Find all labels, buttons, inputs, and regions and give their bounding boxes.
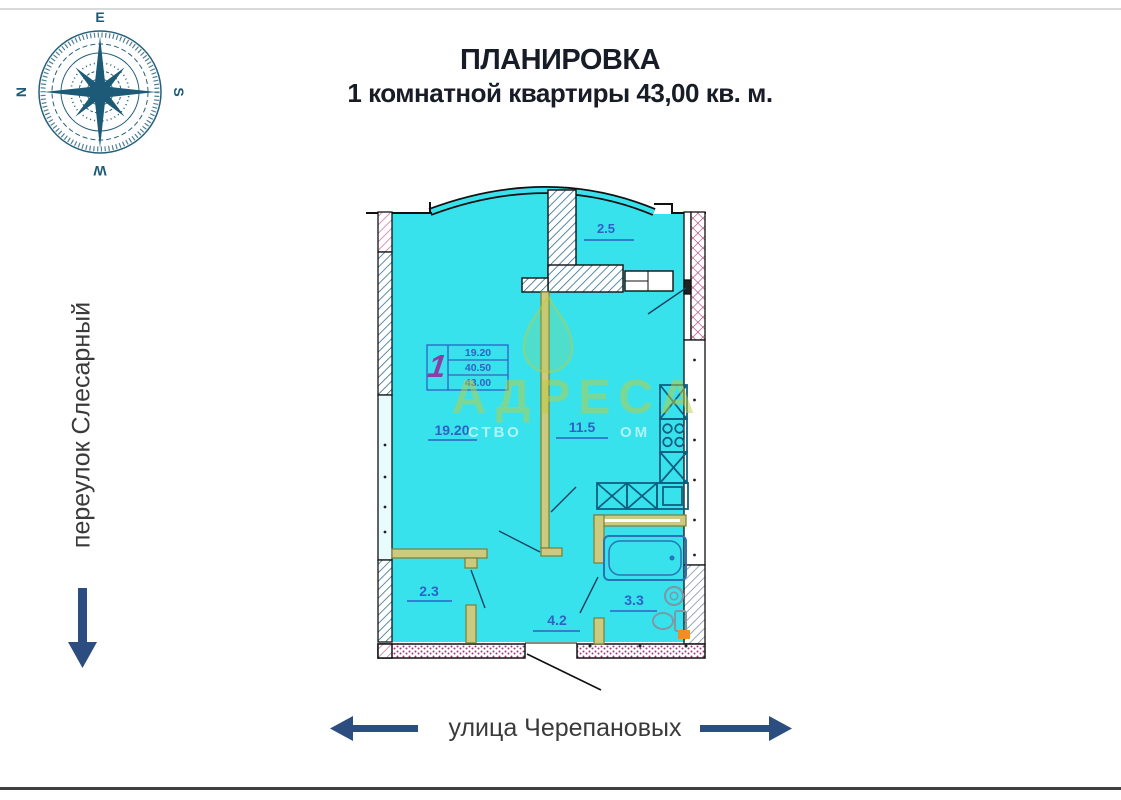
street-label-left: переулок Слесарный [68,302,97,548]
street-arrow-left-icon [330,716,418,741]
plan-graphics: E S W N [0,0,1121,800]
compass-rose-icon: E S W N [13,9,187,179]
legend-row-full-area: 43.00 [450,376,506,391]
room-label-bathroom: 3.3 [604,592,664,608]
legend-apartment-number: 1 [421,348,452,385]
room-label-living: 19.20 [422,422,482,438]
room-label-kitchen: 11.5 [552,419,612,435]
bottom-divider-line [0,787,1121,790]
street-arrow-down-icon [68,588,97,668]
room-label-balcony: 2.5 [576,221,636,236]
legend-row-living-area: 19.20 [450,346,506,361]
street-label-bottom: улица Черепановых [420,714,710,743]
wall-left [378,212,392,642]
page-title: ПЛАНИРОВКА [280,44,840,77]
room-label-corridor: 4.2 [527,612,587,628]
compass-letter-left: N [13,87,29,97]
wall-bottom [378,643,705,658]
top-divider-line [0,8,1121,10]
partition-hall [392,549,487,558]
entrance-door-swing [527,654,601,690]
legend-row-total-area: 40.50 [450,361,506,376]
compass-letter-top: E [95,9,104,25]
compass-letter-bottom: W [93,163,107,179]
compass-letter-right: S [171,87,187,96]
heater-orange [678,630,690,639]
street-arrow-right-icon [700,716,792,741]
room-label-hall: 2.3 [399,583,459,599]
floorplan-page: E S W N [0,0,1121,800]
page-subtitle: 1 комнатной квартиры 43,00 кв. м. [280,78,840,109]
